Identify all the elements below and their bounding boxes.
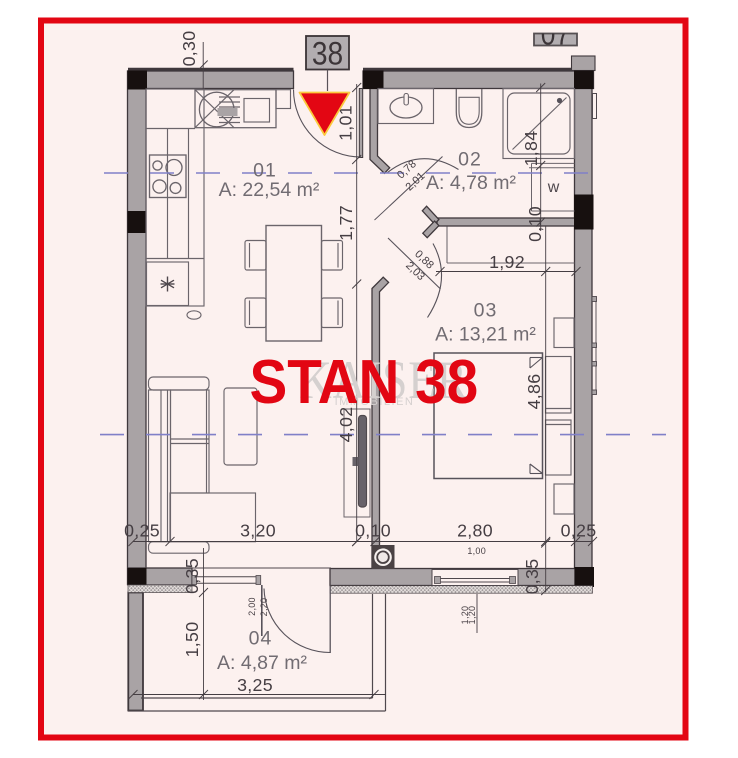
svg-text:0,25: 0,25 bbox=[561, 521, 597, 541]
svg-text:38: 38 bbox=[312, 37, 343, 72]
svg-text:A: 13,21 m²: A: 13,21 m² bbox=[435, 324, 536, 346]
svg-text:A: 4,87 m²: A: 4,87 m² bbox=[217, 652, 307, 674]
svg-text:4,86: 4,86 bbox=[524, 374, 544, 410]
svg-text:0,10: 0,10 bbox=[355, 521, 391, 541]
svg-text:0,35: 0,35 bbox=[522, 559, 542, 595]
svg-text:1,00: 1,00 bbox=[467, 546, 486, 556]
svg-text:0,10: 0,10 bbox=[525, 206, 545, 242]
svg-text:1,20: 1,20 bbox=[467, 606, 477, 625]
svg-text:0,25: 0,25 bbox=[124, 521, 160, 541]
svg-text:4,02: 4,02 bbox=[336, 407, 356, 443]
svg-text:2,20: 2,20 bbox=[259, 598, 269, 617]
svg-text:3,25: 3,25 bbox=[237, 675, 273, 695]
svg-text:03: 03 bbox=[474, 300, 498, 322]
svg-text:A: 4,78 m²: A: 4,78 m² bbox=[426, 172, 516, 194]
svg-text:w: w bbox=[547, 179, 560, 196]
svg-text:1,50: 1,50 bbox=[182, 622, 202, 658]
svg-text:1,84: 1,84 bbox=[521, 131, 541, 167]
svg-text:STAN 38: STAN 38 bbox=[250, 346, 479, 416]
svg-text:02: 02 bbox=[458, 149, 482, 171]
svg-text:0,30: 0,30 bbox=[179, 31, 199, 67]
svg-text:04: 04 bbox=[249, 628, 273, 650]
svg-text:0,35: 0,35 bbox=[182, 558, 202, 594]
svg-text:2,80: 2,80 bbox=[457, 521, 493, 541]
svg-text:2,00: 2,00 bbox=[247, 597, 257, 616]
svg-text:1,92: 1,92 bbox=[489, 252, 525, 272]
svg-text:A: 22,54 m²: A: 22,54 m² bbox=[219, 179, 320, 201]
svg-text:1,77: 1,77 bbox=[336, 205, 356, 241]
svg-text:3,20: 3,20 bbox=[240, 521, 276, 541]
